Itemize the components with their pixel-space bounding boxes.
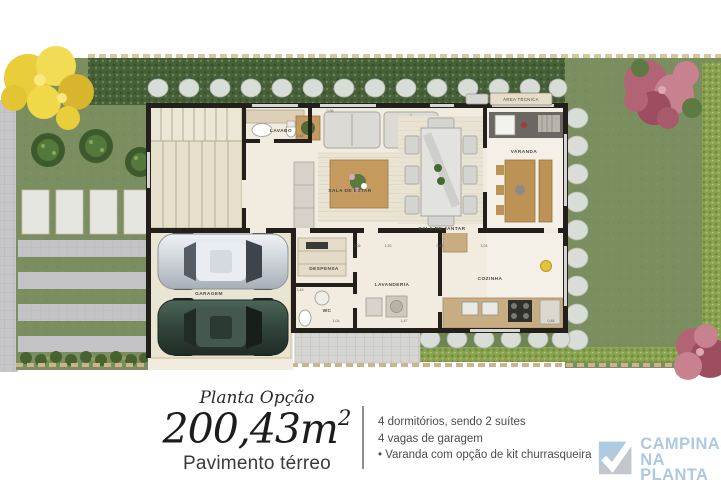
plan-title-block: Planta Opção 200,43m2 Pavimento térreo xyxy=(148,388,366,475)
left-sidewalk xyxy=(0,100,18,372)
area-tecnica-plaque: ÁREA TÉCNICA xyxy=(466,93,552,105)
car-silver xyxy=(158,232,288,290)
logo-text: CAMPINAS NA PLANTA CRECI 29.707-J xyxy=(640,437,721,488)
feature-list: 4 dormitórios, sendo 2 suítes 4 vagas de… xyxy=(378,414,592,464)
room-label-lavabo: LAVABO xyxy=(270,128,292,134)
dimension: 1,44 xyxy=(297,288,304,292)
dimension: 0,84 xyxy=(548,319,555,323)
room-label-wc: WC xyxy=(323,308,332,314)
dimension: 0,61 xyxy=(437,244,444,248)
stairs xyxy=(150,107,242,228)
plan-area-value: 200,43m2 xyxy=(148,408,366,451)
floor-name: Pavimento térreo xyxy=(148,453,366,475)
room-label-area-tecnica: ÁREA TÉCNICA xyxy=(503,97,539,102)
floor-plan: ÁREA TÉCNICA LAVABO SALA DE ESTAR SALA D… xyxy=(0,0,721,380)
caption-divider xyxy=(362,406,364,469)
feature-item: 4 dormitórios, sendo 2 suítes xyxy=(378,414,592,431)
logo-check-icon xyxy=(597,437,635,477)
varanda-furniture xyxy=(489,112,563,222)
area-superscript: 2 xyxy=(338,406,352,431)
dimension: 3,04 xyxy=(481,244,488,248)
car-green xyxy=(158,298,288,356)
dimension: 0,36 xyxy=(327,109,334,113)
area-number: 200,43m xyxy=(163,405,338,453)
room-label-varanda: VARANDA xyxy=(511,149,538,155)
dimension: 1,42 xyxy=(297,134,304,138)
real-estate-floorplan-page: ÁREA TÉCNICA LAVABO SALA DE ESTAR SALA D… xyxy=(0,0,721,488)
dimension: 1,92 xyxy=(385,244,392,248)
room-label-cozinha: COZINHA xyxy=(478,276,503,282)
room-label-sala-de-jantar: SALA DE JANTAR xyxy=(419,226,466,232)
room-label-despensa: DESPENSA xyxy=(309,266,339,272)
room-label-garagem: GARAGEM xyxy=(195,291,223,297)
campinas-na-planta-logo: CAMPINAS NA PLANTA CRECI 29.707-J xyxy=(597,437,721,488)
dimension: 1,47 xyxy=(401,319,408,323)
dimension: 2,06 xyxy=(354,244,361,248)
room-label-lavanderia: LAVANDERIA xyxy=(375,282,410,288)
room-label-sala-de-estar: SALA DE ESTAR xyxy=(328,188,371,194)
logo-name-line2: NA PLANTA xyxy=(640,453,721,484)
feature-item: • Varanda com opção de kit churrasqueira xyxy=(378,447,592,464)
feature-item: 4 vagas de garagem xyxy=(378,431,592,448)
dimension: 1,04 xyxy=(333,319,340,323)
dining-room-furniture xyxy=(398,116,484,226)
